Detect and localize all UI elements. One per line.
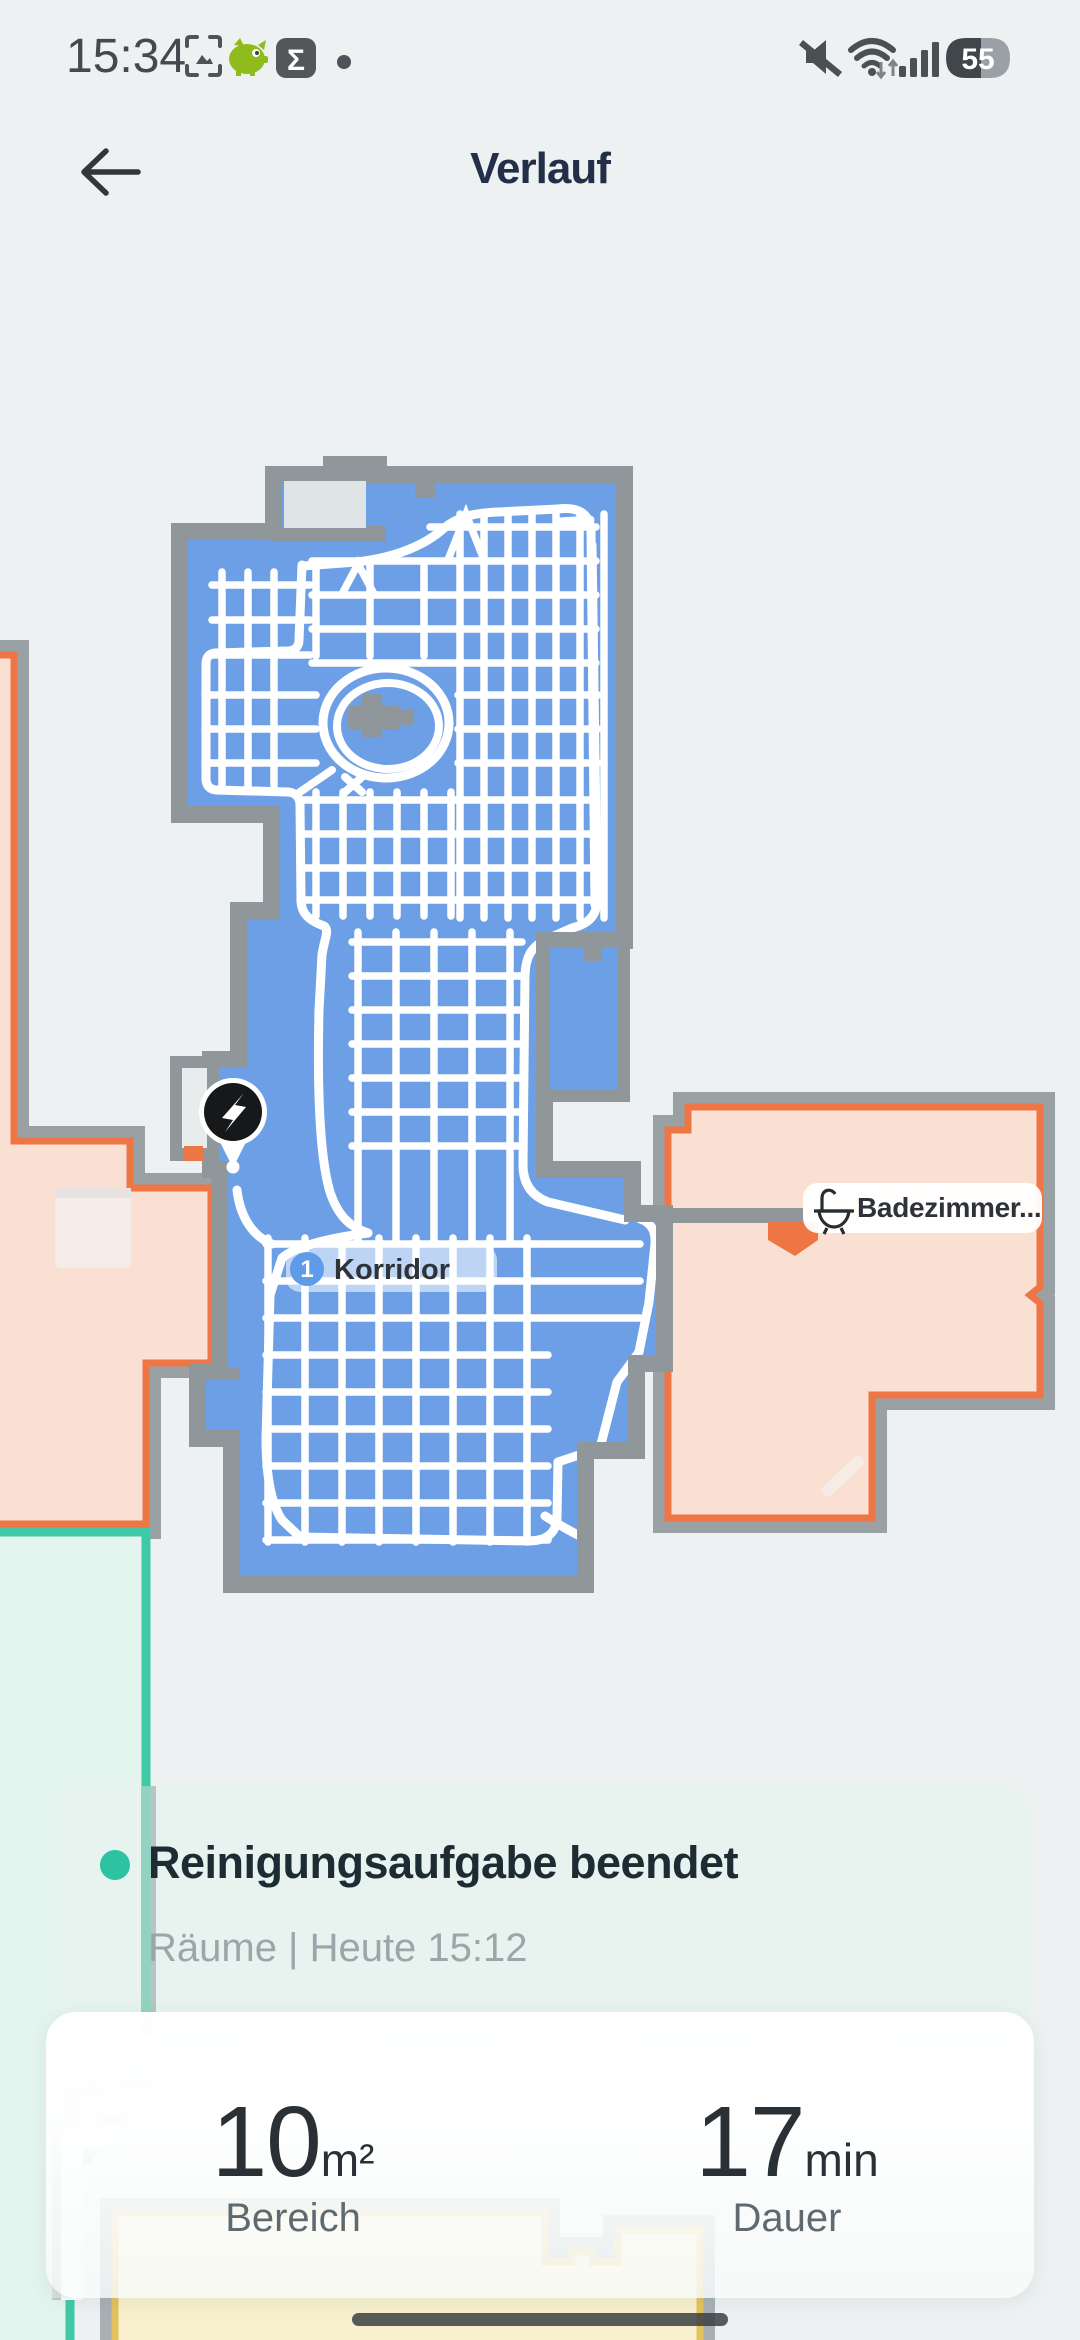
- svg-text:Σ: Σ: [287, 44, 305, 77]
- svg-text:Korridor: Korridor: [334, 1254, 450, 1286]
- svg-text:1: 1: [300, 1256, 313, 1283]
- svg-text:Badezimmer...: Badezimmer...: [857, 1192, 1041, 1223]
- svg-text:55: 55: [961, 43, 994, 76]
